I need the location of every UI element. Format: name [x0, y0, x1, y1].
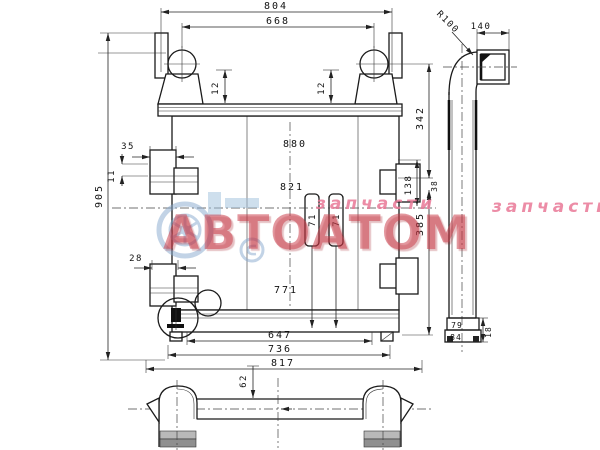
- dim-804: 804: [264, 1, 288, 12]
- dim-140: 140: [471, 22, 492, 32]
- dim-880: 880: [283, 139, 307, 150]
- dim-821: 821: [280, 182, 304, 193]
- dim-342: 342: [415, 106, 426, 130]
- elbow-outer-curve: [449, 52, 477, 95]
- copyright-icon: [241, 239, 263, 261]
- dim-R100: R100: [434, 9, 461, 36]
- side-view: 79 84 18 140 R100: [434, 9, 517, 352]
- lower-left-bracket: [150, 264, 198, 306]
- dim-138: 138: [404, 175, 414, 196]
- dim-385: 385: [415, 212, 426, 236]
- left-bottom-pipe: [147, 380, 197, 450]
- dim-28: 28: [129, 254, 143, 264]
- right-pipe-tab: [389, 33, 402, 78]
- dim-771: 771: [274, 285, 298, 296]
- dim-62: 62: [239, 374, 249, 388]
- dim-12-right: 12: [317, 81, 327, 95]
- dim-18: 18: [484, 326, 493, 338]
- top-tank: [158, 104, 402, 116]
- dim-35: 35: [121, 142, 135, 152]
- right-bottom-pipe: [363, 380, 413, 450]
- dim-736: 736: [268, 344, 292, 355]
- dim-668: 668: [266, 16, 290, 27]
- dim-905: 905: [94, 184, 105, 208]
- upper-right-bracket: [380, 164, 420, 202]
- dim-817: 817: [271, 358, 295, 369]
- dim-71-left: 71: [308, 213, 318, 227]
- dim-12-left: 12: [211, 81, 221, 95]
- bottom-view: [128, 378, 432, 450]
- wheel-logo-icon: [159, 204, 211, 256]
- watermark-logo: [159, 192, 263, 261]
- dim-38: 38: [430, 180, 439, 192]
- left-pipe-tab: [155, 33, 168, 78]
- dim-647: 647: [268, 330, 292, 341]
- logo-bar-mark: [225, 198, 259, 208]
- dim-79: 79: [451, 321, 463, 330]
- technical-drawing: 804 668 12 12 905 35 11 28: [0, 0, 600, 450]
- dim-84: 84: [450, 333, 462, 342]
- dim-11: 11: [107, 169, 117, 183]
- logo-letter-mark: [208, 192, 221, 216]
- front-view: [98, 33, 436, 341]
- lower-right-bracket: [380, 258, 418, 294]
- dim-71-right: 71: [332, 213, 342, 227]
